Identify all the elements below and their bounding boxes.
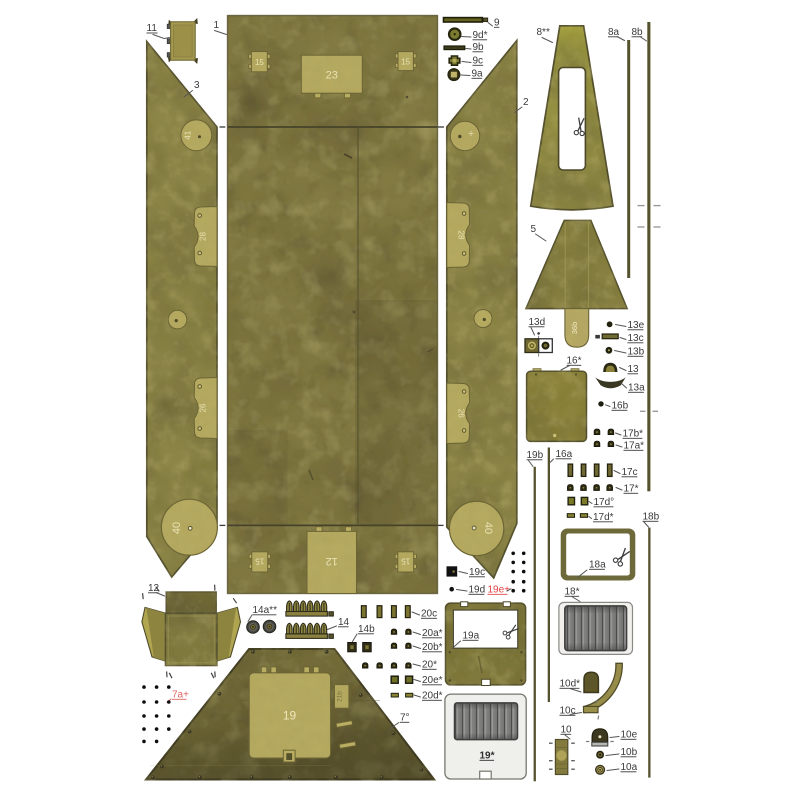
svg-text:19: 19 <box>283 709 297 723</box>
svg-text:9a: 9a <box>472 69 484 80</box>
svg-text:2: 2 <box>523 97 529 108</box>
svg-text:5: 5 <box>531 224 537 235</box>
svg-text:40: 40 <box>482 522 494 534</box>
svg-text:40: 40 <box>171 522 183 534</box>
svg-text:26: 26 <box>456 409 465 418</box>
svg-text:36b: 36b <box>570 322 579 335</box>
svg-text:1: 1 <box>214 20 220 31</box>
svg-text:21b: 21b <box>337 691 344 702</box>
svg-text:28: 28 <box>199 232 208 241</box>
svg-text:41: 41 <box>184 130 193 139</box>
svg-text:12: 12 <box>326 555 338 567</box>
svg-text:23: 23 <box>326 70 338 82</box>
svg-text:15: 15 <box>401 57 410 66</box>
svg-text:28: 28 <box>456 231 465 240</box>
svg-text:15: 15 <box>401 557 410 566</box>
svg-text:15: 15 <box>255 58 264 67</box>
svg-text:11: 11 <box>147 23 158 34</box>
svg-text:9c: 9c <box>473 56 484 67</box>
svg-text:3: 3 <box>194 80 200 91</box>
svg-text:26: 26 <box>199 403 208 412</box>
svg-text:8**: 8** <box>537 27 550 38</box>
svg-text:15: 15 <box>255 557 264 566</box>
